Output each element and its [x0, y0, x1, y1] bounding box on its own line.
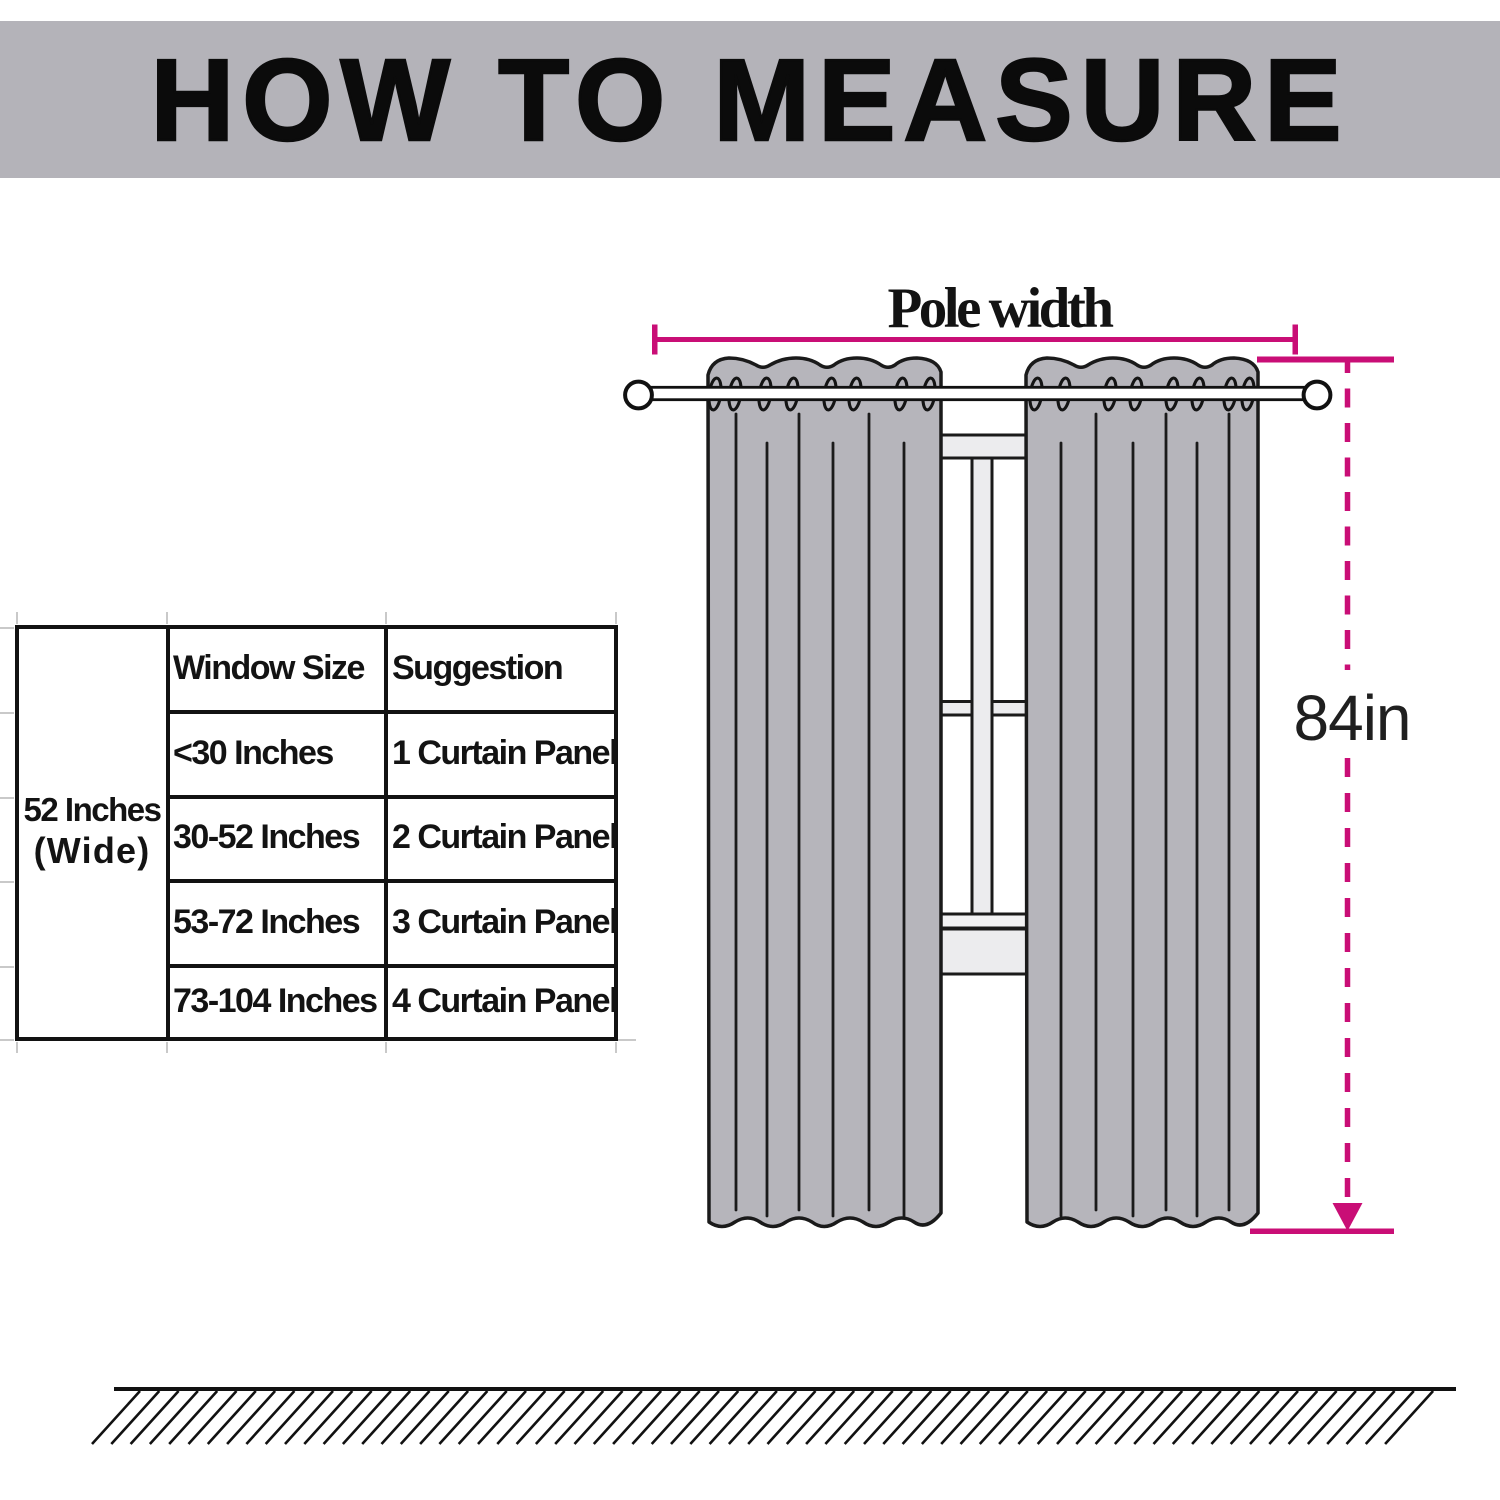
svg-text:Pole width: Pole width: [887, 277, 1113, 340]
svg-text:84in: 84in: [1294, 682, 1411, 754]
